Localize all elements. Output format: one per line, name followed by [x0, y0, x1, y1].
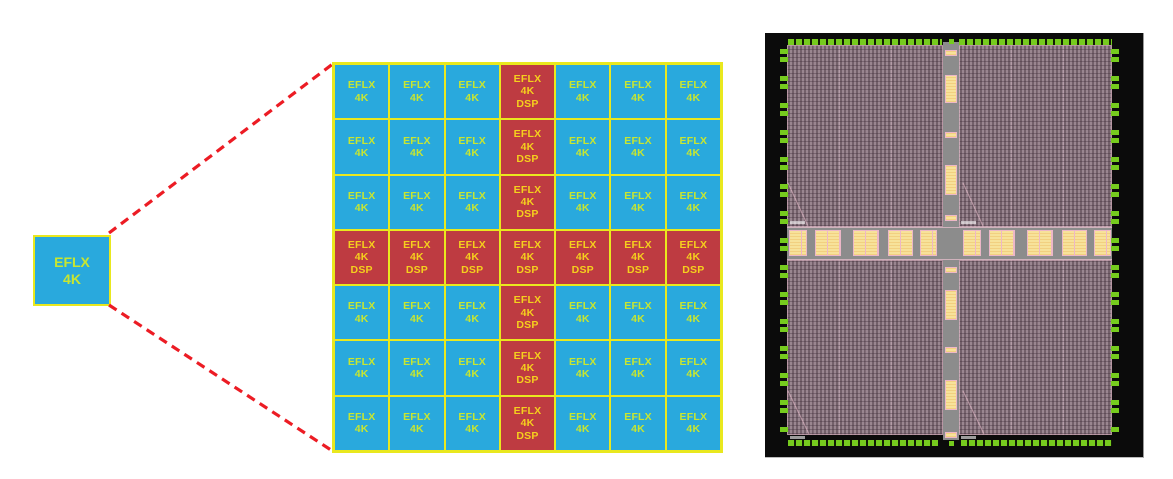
- grid-tile-label-line: EFLX: [624, 411, 652, 423]
- die-center-channel-small-block: [945, 50, 957, 56]
- grid-tile-label-line: 4K: [521, 307, 535, 319]
- grid-tile-label-line: 4K: [576, 368, 590, 380]
- grid-tile-label-line: 4K: [521, 196, 535, 208]
- die-hard-blocks: [765, 33, 1143, 457]
- grid-tile-label-line: EFLX: [569, 239, 597, 251]
- grid-tile-label-line: 4K: [521, 85, 535, 97]
- grid-tile-label-line: EFLX: [514, 128, 542, 140]
- grid-tile-label-line: 4K: [521, 362, 535, 374]
- grid-tile-label-line: EFLX: [403, 411, 431, 423]
- grid-tile-label-line: 4K: [410, 202, 424, 214]
- grid-tile-label-line: 4K: [686, 313, 700, 325]
- grid-tile-label-line: 4K: [355, 147, 369, 159]
- grid-tile-eflx-4k-dsp: EFLX4KDSP: [501, 341, 554, 394]
- grid-tile-eflx-4k: EFLX4K: [667, 65, 720, 118]
- die-tile-name-mark: [961, 221, 976, 224]
- grid-tile-eflx-4k: EFLX4K: [446, 286, 499, 339]
- grid-tile-label-line: DSP: [516, 264, 538, 276]
- grid-tile-label-line: EFLX: [624, 135, 652, 147]
- grid-tile-label-line: 4K: [355, 92, 369, 104]
- single-tile-label-line1: EFLX: [54, 255, 90, 269]
- grid-tile-eflx-4k: EFLX4K: [390, 397, 443, 450]
- grid-tile-label-line: 4K: [521, 251, 535, 263]
- grid-tile-eflx-4k: EFLX4K: [611, 120, 664, 173]
- grid-tile-label-line: 4K: [410, 251, 424, 263]
- grid-tile-label-line: EFLX: [514, 184, 542, 196]
- grid-tile-label-line: EFLX: [403, 239, 431, 251]
- grid-tile-label-line: EFLX: [348, 356, 376, 368]
- die-tile-name-mark: [961, 436, 976, 439]
- grid-tile-label-line: 4K: [465, 368, 479, 380]
- grid-tile-label-line: EFLX: [514, 294, 542, 306]
- grid-tile-label-line: 4K: [355, 251, 369, 263]
- grid-tile-label-line: EFLX: [514, 405, 542, 417]
- grid-tile-label-line: EFLX: [569, 300, 597, 312]
- grid-tile-eflx-4k: EFLX4K: [390, 120, 443, 173]
- grid-tile-eflx-4k: EFLX4K: [390, 286, 443, 339]
- grid-tile-eflx-4k: EFLX4K: [667, 176, 720, 229]
- die-center-channel-small-block: [945, 432, 957, 438]
- grid-tile-eflx-4k-dsp: EFLX4KDSP: [611, 231, 664, 284]
- grid-tile-eflx-4k-dsp: EFLX4KDSP: [501, 397, 554, 450]
- grid-tile-eflx-4k: EFLX4K: [335, 176, 388, 229]
- grid-tile-eflx-4k-dsp: EFLX4KDSP: [390, 231, 443, 284]
- grid-tile-label-line: EFLX: [569, 411, 597, 423]
- grid-tile-label-line: EFLX: [680, 300, 708, 312]
- grid-tile-label-line: EFLX: [458, 135, 486, 147]
- grid-tile-eflx-4k-dsp: EFLX4KDSP: [501, 286, 554, 339]
- grid-tile-label-line: DSP: [351, 264, 373, 276]
- die-center-channel-small-block: [945, 267, 957, 273]
- grid-tile-label-line: EFLX: [514, 350, 542, 362]
- grid-tile-label-line: 4K: [631, 251, 645, 263]
- grid-tile-label-line: 4K: [576, 147, 590, 159]
- chip-die-photo: [765, 33, 1144, 458]
- grid-tile-label-line: EFLX: [403, 190, 431, 202]
- grid-tile-eflx-4k: EFLX4K: [335, 120, 388, 173]
- die-center-channel-ram-block: [945, 75, 957, 103]
- grid-tile-label-line: 4K: [576, 202, 590, 214]
- grid-tile-label-line: 4K: [465, 423, 479, 435]
- grid-tile-eflx-4k: EFLX4K: [446, 65, 499, 118]
- grid-tile-eflx-4k: EFLX4K: [556, 341, 609, 394]
- grid-tile-label-line: EFLX: [458, 300, 486, 312]
- grid-tile-eflx-4k: EFLX4K: [667, 397, 720, 450]
- grid-tile-label-line: EFLX: [458, 79, 486, 91]
- grid-tile-label-line: EFLX: [348, 300, 376, 312]
- grid-tile-label-line: DSP: [516, 319, 538, 331]
- figure-canvas: EFLX 4K EFLX4KEFLX4KEFLX4KEFLX4KDSPEFLX4…: [0, 0, 1173, 479]
- grid-tile-eflx-4k-dsp: EFLX4KDSP: [501, 176, 554, 229]
- grid-tile-label-line: 4K: [410, 368, 424, 380]
- grid-tile-eflx-4k: EFLX4K: [611, 65, 664, 118]
- grid-tile-label-line: EFLX: [624, 356, 652, 368]
- grid-tile-label-line: EFLX: [514, 73, 542, 85]
- grid-tile-label-line: 4K: [355, 368, 369, 380]
- grid-tile-label-line: DSP: [516, 98, 538, 110]
- die-center-channel-small-block: [945, 132, 957, 138]
- grid-tile-label-line: EFLX: [624, 300, 652, 312]
- grid-tile-eflx-4k: EFLX4K: [556, 176, 609, 229]
- grid-tile-label-line: DSP: [461, 264, 483, 276]
- die-mid-channel-ram-cluster: [963, 230, 981, 256]
- grid-tile-eflx-4k: EFLX4K: [556, 65, 609, 118]
- grid-tile-label-line: 4K: [355, 423, 369, 435]
- die-mid-channel-ram-cluster: [789, 230, 807, 256]
- grid-tile-label-line: DSP: [572, 264, 594, 276]
- grid-tile-label-line: 4K: [521, 417, 535, 429]
- grid-tile-label-line: EFLX: [403, 300, 431, 312]
- grid-tile-label-line: EFLX: [458, 411, 486, 423]
- grid-tile-eflx-4k-dsp: EFLX4KDSP: [501, 65, 554, 118]
- grid-tile-label-line: 4K: [410, 147, 424, 159]
- grid-tile-label-line: EFLX: [348, 411, 376, 423]
- grid-tile-label-line: 4K: [576, 313, 590, 325]
- grid-tile-label-line: 4K: [631, 313, 645, 325]
- grid-tile-eflx-4k-dsp: EFLX4KDSP: [501, 231, 554, 284]
- grid-tile-label-line: EFLX: [348, 135, 376, 147]
- grid-tile-label-line: 4K: [465, 202, 479, 214]
- grid-tile-label-line: 4K: [631, 423, 645, 435]
- grid-tile-eflx-4k-dsp: EFLX4KDSP: [667, 231, 720, 284]
- zoom-connector-top-line: [109, 63, 334, 233]
- grid-tile-eflx-4k-dsp: EFLX4KDSP: [446, 231, 499, 284]
- die-mid-channel-ram-cluster: [888, 230, 913, 256]
- grid-tile-label-line: EFLX: [458, 190, 486, 202]
- die-mid-channel-ram-cluster: [920, 230, 937, 256]
- grid-tile-label-line: 4K: [686, 251, 700, 263]
- grid-tile-label-line: 4K: [631, 147, 645, 159]
- grid-tile-label-line: EFLX: [569, 135, 597, 147]
- grid-tile-eflx-4k: EFLX4K: [390, 341, 443, 394]
- die-center-channel-small-block: [945, 215, 957, 221]
- grid-tile-label-line: 4K: [686, 368, 700, 380]
- die-mid-channel-ram-cluster: [815, 230, 841, 256]
- die-mid-channel-ram-cluster: [853, 230, 879, 256]
- grid-tile-label-line: EFLX: [403, 79, 431, 91]
- die-mid-channel-ram-cluster: [1027, 230, 1053, 256]
- grid-tile-label-line: 4K: [686, 92, 700, 104]
- grid-tile-label-line: 4K: [686, 423, 700, 435]
- grid-tile-label-line: EFLX: [348, 190, 376, 202]
- grid-tile-eflx-4k: EFLX4K: [556, 397, 609, 450]
- die-tile-name-mark: [790, 221, 805, 224]
- grid-tile-eflx-4k: EFLX4K: [390, 65, 443, 118]
- grid-tile-label-line: 4K: [686, 202, 700, 214]
- grid-tile-eflx-4k: EFLX4K: [335, 341, 388, 394]
- grid-tile-label-line: 4K: [465, 313, 479, 325]
- eflx-tile-array: EFLX4KEFLX4KEFLX4KEFLX4KDSPEFLX4KEFLX4KE…: [332, 62, 723, 453]
- grid-tile-eflx-4k: EFLX4K: [611, 176, 664, 229]
- grid-tile-label-line: EFLX: [624, 239, 652, 251]
- grid-tile-eflx-4k: EFLX4K: [446, 120, 499, 173]
- grid-tile-label-line: EFLX: [458, 239, 486, 251]
- grid-tile-label-line: EFLX: [348, 79, 376, 91]
- grid-tile-label-line: 4K: [631, 202, 645, 214]
- grid-tile-label-line: DSP: [516, 430, 538, 442]
- grid-tile-label-line: DSP: [516, 208, 538, 220]
- grid-tile-label-line: 4K: [521, 141, 535, 153]
- grid-tile-label-line: 4K: [576, 92, 590, 104]
- single-tile-label-line2: 4K: [63, 272, 81, 286]
- grid-tile-label-line: DSP: [627, 264, 649, 276]
- grid-tile-label-line: EFLX: [348, 239, 376, 251]
- grid-tile-eflx-4k: EFLX4K: [667, 120, 720, 173]
- grid-tile-label-line: 4K: [465, 251, 479, 263]
- grid-tile-label-line: EFLX: [569, 79, 597, 91]
- grid-tile-label-line: EFLX: [514, 239, 542, 251]
- grid-tile-label-line: EFLX: [569, 356, 597, 368]
- grid-tile-label-line: EFLX: [680, 135, 708, 147]
- grid-tile-label-line: 4K: [631, 368, 645, 380]
- grid-tile-eflx-4k-dsp: EFLX4KDSP: [335, 231, 388, 284]
- grid-tile-eflx-4k: EFLX4K: [667, 286, 720, 339]
- grid-tile-label-line: 4K: [631, 92, 645, 104]
- grid-tile-eflx-4k-dsp: EFLX4KDSP: [501, 120, 554, 173]
- die-center-channel-ram-block: [945, 290, 957, 320]
- grid-tile-label-line: 4K: [576, 251, 590, 263]
- grid-tile-label-line: EFLX: [680, 356, 708, 368]
- die-center-channel-ram-block: [945, 165, 957, 195]
- grid-tile-label-line: 4K: [410, 423, 424, 435]
- die-mid-channel-ram-cluster: [1094, 230, 1111, 256]
- grid-tile-label-line: EFLX: [569, 190, 597, 202]
- grid-tile-label-line: DSP: [682, 264, 704, 276]
- grid-tile-label-line: 4K: [465, 92, 479, 104]
- grid-tile-eflx-4k: EFLX4K: [611, 397, 664, 450]
- grid-tile-eflx-4k: EFLX4K: [446, 397, 499, 450]
- grid-tile-eflx-4k: EFLX4K: [390, 176, 443, 229]
- die-mid-channel-ram-cluster: [989, 230, 1015, 256]
- grid-tile-eflx-4k: EFLX4K: [335, 397, 388, 450]
- die-center-channel-ram-block: [945, 380, 957, 410]
- grid-tile-label-line: 4K: [465, 147, 479, 159]
- grid-tile-label-line: EFLX: [403, 135, 431, 147]
- grid-tile-label-line: EFLX: [458, 356, 486, 368]
- grid-tile-label-line: EFLX: [680, 79, 708, 91]
- grid-tile-label-line: 4K: [686, 147, 700, 159]
- grid-tile-eflx-4k-dsp: EFLX4KDSP: [556, 231, 609, 284]
- grid-tile-label-line: DSP: [406, 264, 428, 276]
- grid-tile-label-line: 4K: [410, 313, 424, 325]
- grid-tile-label-line: DSP: [516, 153, 538, 165]
- grid-tile-eflx-4k: EFLX4K: [556, 120, 609, 173]
- grid-tile-eflx-4k: EFLX4K: [446, 176, 499, 229]
- grid-tile-label-line: EFLX: [624, 79, 652, 91]
- grid-tile-label-line: 4K: [355, 313, 369, 325]
- die-tile-name-mark: [790, 436, 805, 439]
- grid-tile-eflx-4k: EFLX4K: [611, 341, 664, 394]
- grid-tile-eflx-4k: EFLX4K: [335, 286, 388, 339]
- grid-tile-label-line: DSP: [516, 374, 538, 386]
- grid-tile-label-line: 4K: [410, 92, 424, 104]
- grid-tile-label-line: EFLX: [624, 190, 652, 202]
- grid-tile-eflx-4k: EFLX4K: [611, 286, 664, 339]
- grid-tile-eflx-4k: EFLX4K: [446, 341, 499, 394]
- eflx-4k-single-tile: EFLX 4K: [33, 235, 111, 306]
- grid-tile-eflx-4k: EFLX4K: [556, 286, 609, 339]
- grid-tile-label-line: 4K: [355, 202, 369, 214]
- grid-tile-label-line: EFLX: [680, 239, 708, 251]
- grid-tile-label-line: EFLX: [680, 411, 708, 423]
- die-center-channel-small-block: [945, 347, 957, 353]
- zoom-connector-bottom-line: [109, 305, 334, 452]
- grid-tile-eflx-4k: EFLX4K: [335, 65, 388, 118]
- grid-tile-label-line: 4K: [576, 423, 590, 435]
- grid-tile-eflx-4k: EFLX4K: [667, 341, 720, 394]
- die-mid-channel-ram-cluster: [1062, 230, 1087, 256]
- grid-tile-label-line: EFLX: [403, 356, 431, 368]
- grid-tile-label-line: EFLX: [680, 190, 708, 202]
